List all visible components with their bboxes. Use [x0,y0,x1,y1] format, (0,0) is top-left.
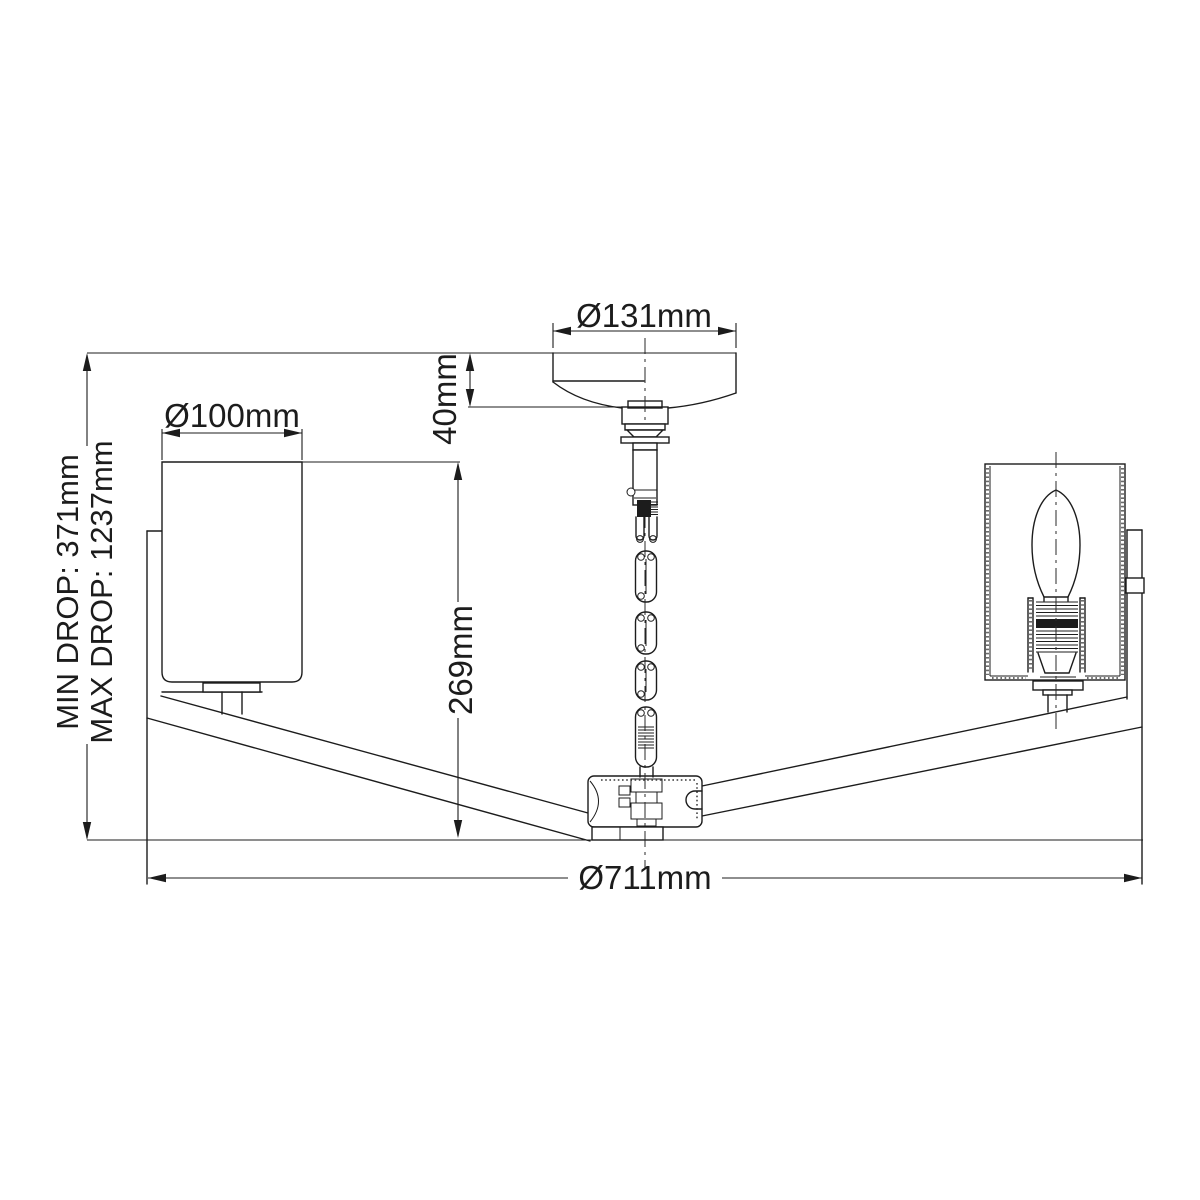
diagram-page: Ø131mm 40mm Ø100mm 269mm MIN DROP: 371mm… [0,0,1200,1200]
chain-links [636,551,657,777]
left-shade [162,462,302,714]
canopy-diameter-label: Ø131mm [576,297,712,334]
overall-diameter-label: Ø711mm [578,859,711,896]
threaded-nipple [637,500,651,517]
left-arm-end-plate [147,531,162,884]
left-shade-base [203,683,260,692]
dim-body-height [302,462,462,838]
plate-clamp-square [1126,578,1144,593]
shade-diameter-label: Ø100mm [164,397,300,434]
chain-rod-threads [638,727,654,748]
hub-base-plate [592,827,663,840]
dim-canopy-height [466,353,622,407]
canopy-height-label: 40mm [426,353,463,445]
max-drop-label: MAX DROP: 1237mm [84,440,119,743]
stem-rod [627,450,658,542]
body-height-label: 269mm [442,605,479,715]
stem-connector [621,424,669,450]
min-drop-label: MIN DROP: 371mm [50,454,85,730]
right-arm-end-plate [1126,530,1144,884]
right-arm [702,697,1142,816]
diagram-canvas: Ø131mm 40mm Ø100mm 269mm MIN DROP: 371mm… [0,0,1200,1200]
left-arm [147,696,590,841]
